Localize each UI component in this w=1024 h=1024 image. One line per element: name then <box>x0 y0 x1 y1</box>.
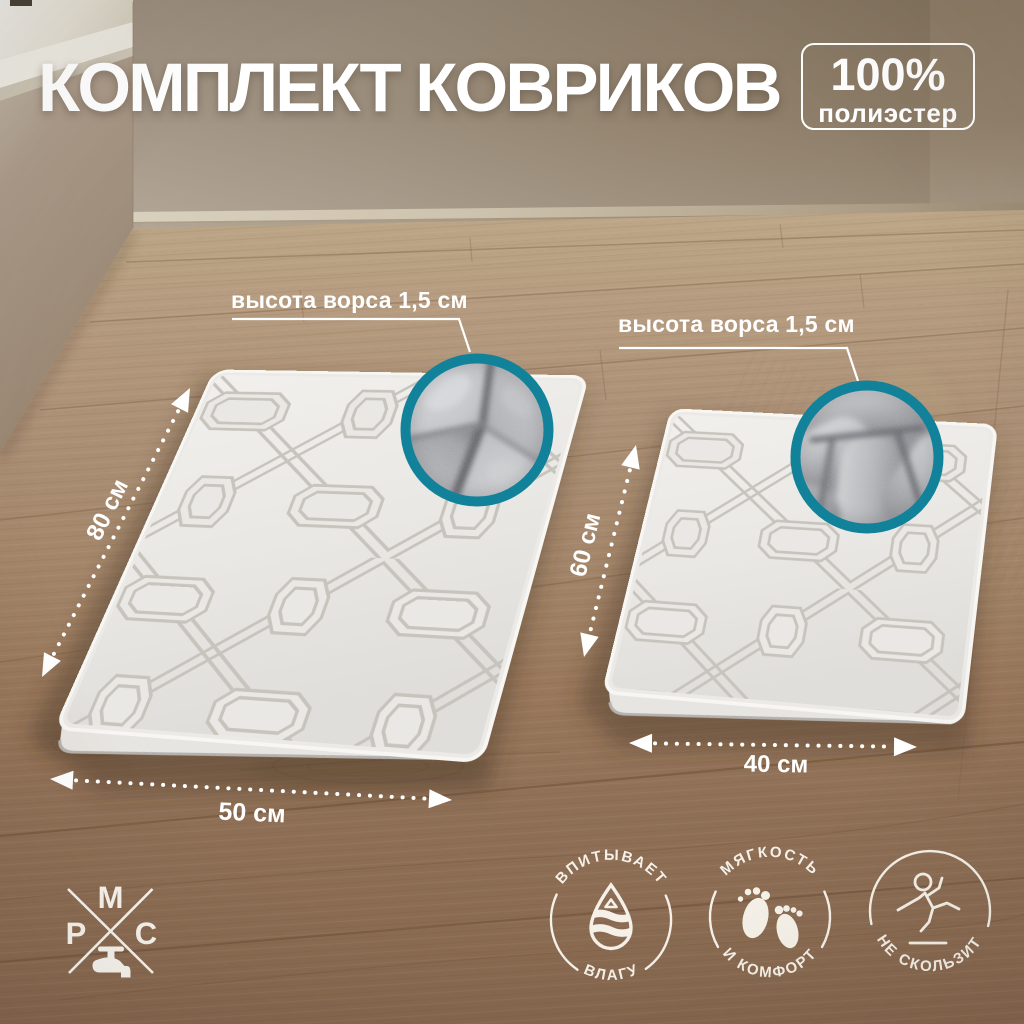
svg-text:ВПИТЫВАЕТ: ВПИТЫВАЕТ <box>552 847 670 888</box>
svg-text:ВЛАГУ: ВЛАГУ <box>581 961 642 984</box>
svg-text:М: М <box>98 880 124 915</box>
svg-text:НЕ СКОЛЬЗИТ: НЕ СКОЛЬЗИТ <box>873 932 986 976</box>
svg-text:Р: Р <box>66 916 87 951</box>
svg-text:МЯГКОСТЬ: МЯГКОСТЬ <box>717 844 823 879</box>
svg-text:С: С <box>135 916 157 951</box>
svg-text:И КОМФОРТ: И КОМФОРТ <box>719 945 820 982</box>
